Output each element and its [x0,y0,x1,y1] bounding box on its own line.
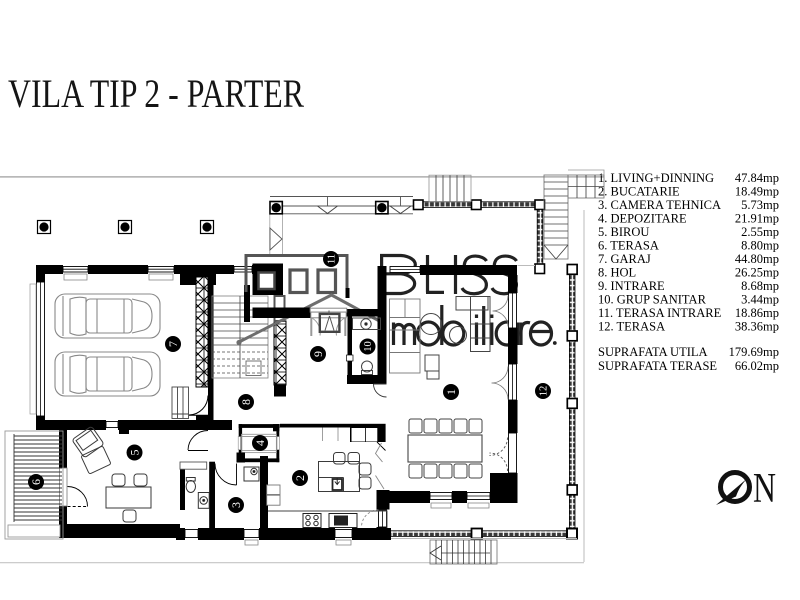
svg-text:5: 5 [127,450,141,456]
svg-text:18.49mp: 18.49mp [735,185,779,199]
svg-text:8: 8 [239,399,253,405]
svg-text:8.80mp: 8.80mp [741,239,779,253]
svg-text:9: 9 [311,351,325,357]
svg-text:3.44mp: 3.44mp [741,293,779,307]
svg-text:3. CAMERA TEHNICA: 3. CAMERA TEHNICA [598,198,721,212]
svg-text:SUPRAFATA TERASE: SUPRAFATA TERASE [598,359,717,373]
svg-text:21.91mp: 21.91mp [735,212,779,226]
svg-text:66.02mp: 66.02mp [735,359,779,373]
svg-text:SUPRAFATA UTILA: SUPRAFATA UTILA [598,345,708,359]
svg-text:8.68mp: 8.68mp [741,279,779,293]
svg-text:1. LIVING+DINNING: 1. LIVING+DINNING [598,171,714,185]
svg-text:179.69mp: 179.69mp [729,345,779,359]
svg-text:4: 4 [253,440,267,446]
svg-text:12: 12 [539,386,550,397]
svg-text:2. BUCATARIE: 2. BUCATARIE [598,185,680,199]
svg-text:5. BIROU: 5. BIROU [598,225,649,239]
svg-text:9. INTRARE: 9. INTRARE [598,279,665,293]
svg-text:6: 6 [29,479,43,485]
svg-text:11. TERASA INTRARE: 11. TERASA INTRARE [598,306,722,320]
svg-text:10: 10 [363,341,374,352]
svg-text:26.25mp: 26.25mp [735,266,779,280]
svg-text:6. TERASA: 6. TERASA [598,239,659,253]
svg-text:44.80mp: 44.80mp [735,252,779,266]
svg-text:7: 7 [166,341,180,347]
svg-text:1: 1 [444,389,458,395]
svg-text:8. HOL: 8. HOL [598,266,636,280]
svg-text:38.36mp: 38.36mp [735,320,779,334]
svg-text:47.84mp: 47.84mp [735,171,779,185]
svg-text:18.86mp: 18.86mp [735,306,779,320]
svg-text:4. DEPOZITARE: 4. DEPOZITARE [598,212,687,226]
svg-text:2: 2 [293,475,307,481]
svg-text:12. TERASA: 12. TERASA [598,320,665,334]
svg-text:VILA TIP 2 - PARTER: VILA TIP 2 - PARTER [8,71,304,116]
svg-text:5.73mp: 5.73mp [741,198,779,212]
svg-text:7. GARAJ: 7. GARAJ [598,252,651,266]
svg-text:2.55mp: 2.55mp [741,225,779,239]
svg-text:3: 3 [229,502,243,508]
svg-text:11: 11 [327,254,338,264]
svg-text:10. GRUP SANITAR: 10. GRUP SANITAR [598,293,707,307]
svg-text:N: N [753,466,776,512]
